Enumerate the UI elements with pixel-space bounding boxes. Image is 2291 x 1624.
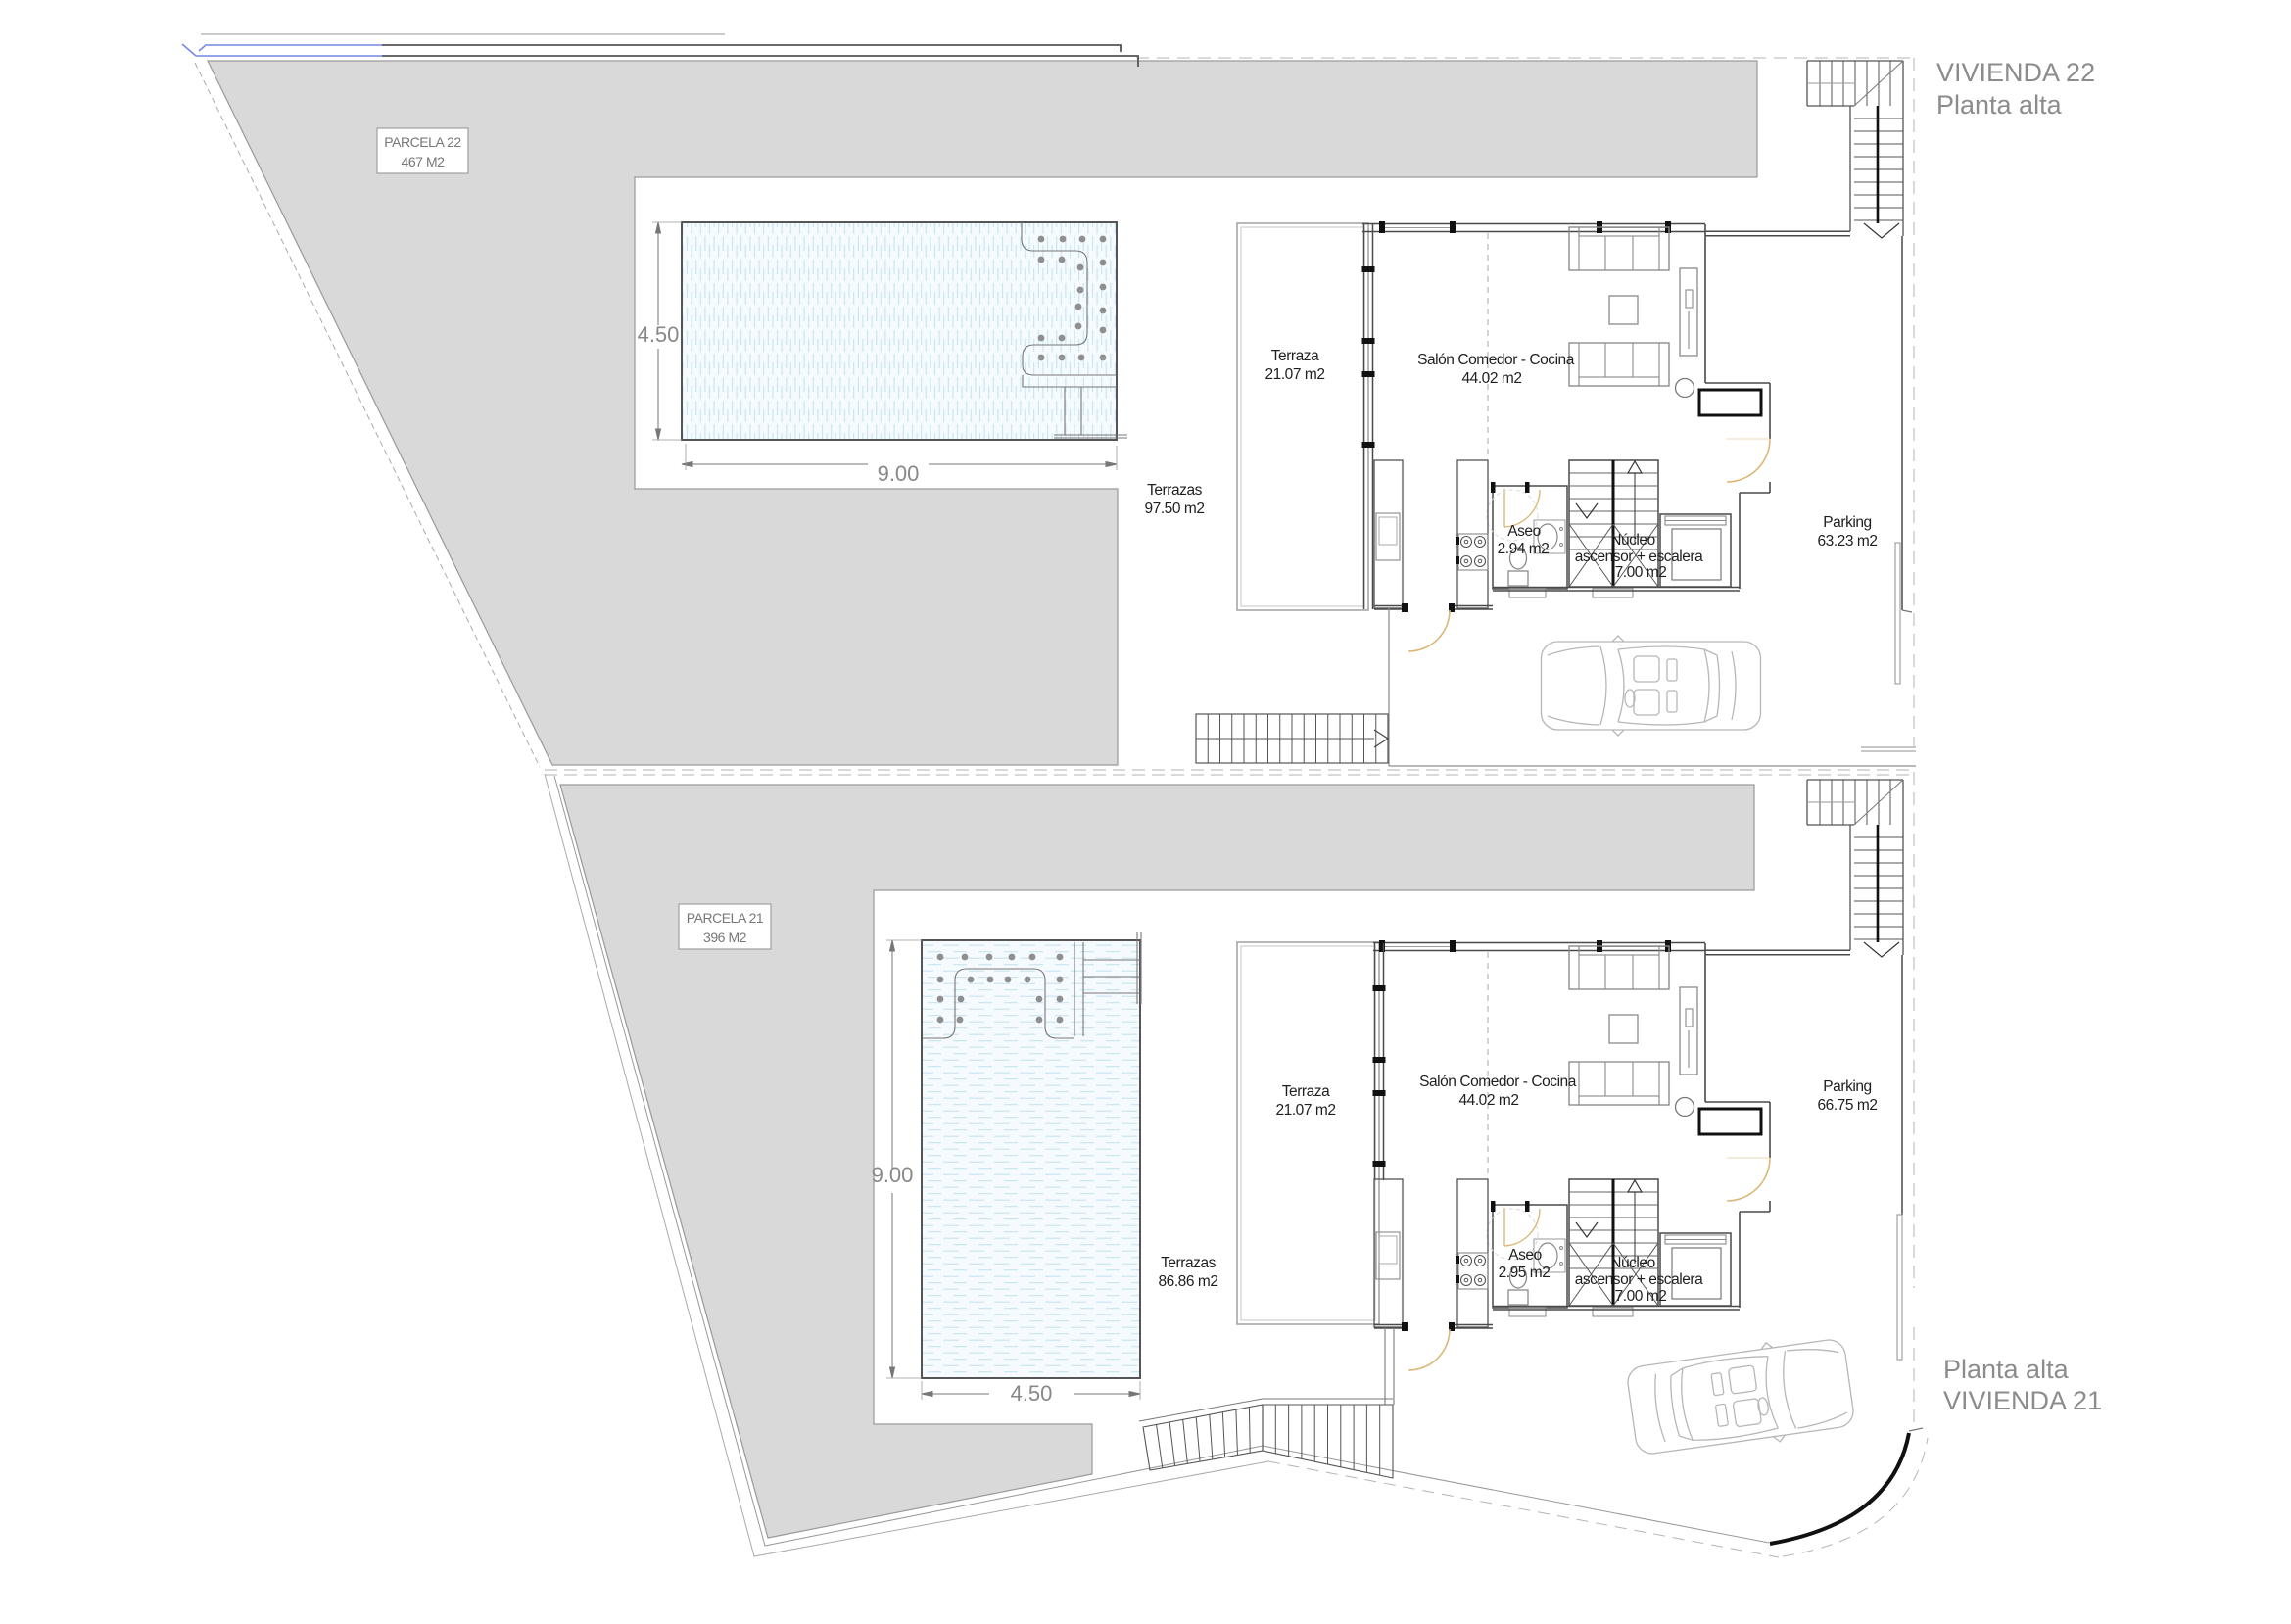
- svg-text:PARCELA 22: PARCELA 22: [384, 134, 461, 150]
- svg-text:Núcleo: Núcleo: [1610, 532, 1655, 549]
- svg-text:VIVIENDA 21: VIVIENDA 21: [1943, 1386, 2102, 1415]
- svg-text:Núcleo: Núcleo: [1610, 1255, 1655, 1271]
- svg-text:21.07 m2: 21.07 m2: [1265, 366, 1324, 383]
- svg-text:4.50: 4.50: [1011, 1381, 1053, 1406]
- svg-text:63.23 m2: 63.23 m2: [1817, 533, 1877, 549]
- svg-text:ascensor + escalera: ascensor + escalera: [1575, 1271, 1703, 1288]
- svg-text:21.07 m2: 21.07 m2: [1275, 1102, 1335, 1119]
- svg-text:4.50: 4.50: [638, 322, 680, 347]
- svg-text:Planta alta: Planta alta: [1943, 1355, 2070, 1384]
- svg-text:Aseo: Aseo: [1507, 523, 1541, 540]
- svg-text:44.02 m2: 44.02 m2: [1461, 370, 1521, 387]
- svg-text:7.00 m2: 7.00 m2: [1615, 1288, 1667, 1305]
- svg-text:7.00 m2: 7.00 m2: [1615, 564, 1667, 581]
- svg-text:2.95 m2: 2.95 m2: [1499, 1265, 1551, 1281]
- svg-text:97.50 m2: 97.50 m2: [1144, 501, 1204, 517]
- svg-text:9.00: 9.00: [878, 461, 920, 486]
- svg-text:ascensor + escalera: ascensor + escalera: [1575, 549, 1703, 565]
- svg-text:Terraza: Terraza: [1271, 348, 1319, 364]
- svg-text:Parking: Parking: [1823, 1078, 1871, 1095]
- svg-text:Terraza: Terraza: [1282, 1083, 1330, 1100]
- svg-text:Salón Comedor - Cocina: Salón Comedor - Cocina: [1417, 352, 1575, 368]
- svg-text:Salón Comedor - Cocina: Salón Comedor - Cocina: [1419, 1074, 1577, 1090]
- svg-text:66.75 m2: 66.75 m2: [1817, 1097, 1877, 1114]
- svg-text:Parking: Parking: [1823, 514, 1871, 531]
- svg-text:2.94 m2: 2.94 m2: [1498, 541, 1550, 557]
- svg-text:9.00: 9.00: [872, 1163, 914, 1187]
- svg-text:396 M2: 396 M2: [703, 930, 747, 945]
- svg-text:Aseo: Aseo: [1508, 1247, 1542, 1264]
- svg-text:86.86 m2: 86.86 m2: [1158, 1273, 1217, 1290]
- svg-text:44.02 m2: 44.02 m2: [1458, 1092, 1518, 1109]
- svg-text:PARCELA 21: PARCELA 21: [687, 910, 764, 926]
- svg-text:Terrazas: Terrazas: [1161, 1255, 1217, 1271]
- svg-text:Planta alta: Planta alta: [1936, 90, 2063, 119]
- svg-text:Terrazas: Terrazas: [1147, 482, 1203, 499]
- svg-text:467 M2: 467 M2: [402, 154, 446, 169]
- svg-text:VIVIENDA 22: VIVIENDA 22: [1936, 58, 2095, 87]
